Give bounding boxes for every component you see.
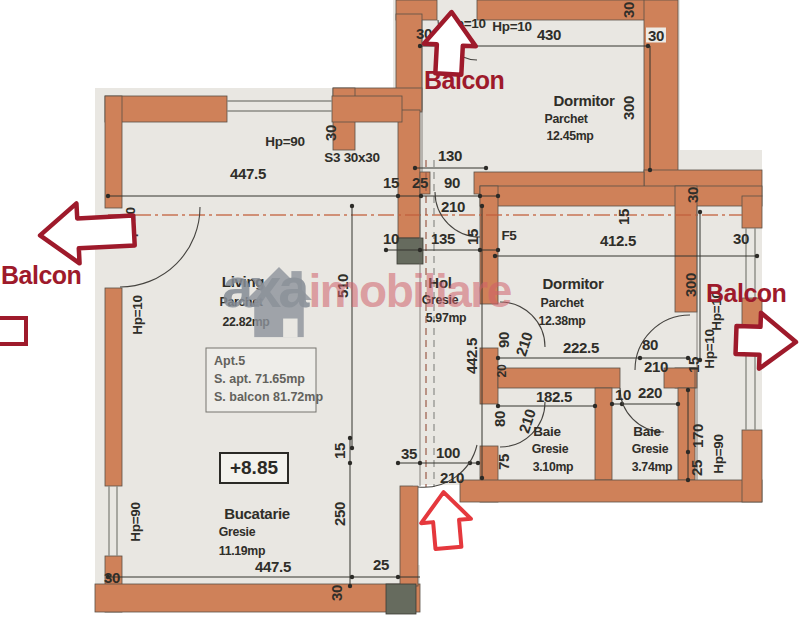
- level-value: +8.85: [230, 457, 278, 479]
- dim-label: 250: [332, 502, 347, 526]
- dim-label: 30: [646, 28, 666, 43]
- dim-label: 300: [621, 96, 636, 120]
- dim-label: 30: [416, 26, 432, 41]
- dim-label: 135: [431, 231, 455, 246]
- level-badge: +8.85: [219, 452, 289, 484]
- dim-label: 15: [686, 357, 701, 373]
- dim-label: 15: [383, 175, 399, 190]
- dim-label: 35: [401, 446, 417, 461]
- dim-label: 442.5: [464, 338, 479, 374]
- room-floor: Gresie: [632, 443, 668, 455]
- dim-label: 220: [638, 385, 662, 400]
- dim-label: 170: [690, 424, 705, 448]
- dim-label: 20: [496, 364, 508, 377]
- room-floor: Parchet: [219, 296, 262, 308]
- dim-label: 447.5: [230, 166, 266, 181]
- dim-label: 510: [335, 274, 350, 298]
- dim-label: 30: [685, 187, 700, 203]
- dim-label: 100: [436, 445, 460, 460]
- dim-label: 10: [615, 387, 631, 402]
- dim-label: Hp=90: [129, 502, 143, 541]
- dim-label: 430: [537, 27, 561, 42]
- dim-label: 90: [444, 175, 460, 190]
- dim-label: 447.5: [255, 559, 291, 574]
- room-area: 5.97mp: [426, 312, 467, 324]
- room-name: Bucatarie: [224, 506, 290, 521]
- room-floor: Parchet: [544, 113, 587, 125]
- dim-label: Hp=90: [712, 434, 726, 473]
- dim-label: F5: [501, 229, 516, 243]
- room-area: 11.19mp: [219, 545, 265, 557]
- dim-label: 80: [492, 411, 507, 427]
- room-area: 22.82mp: [222, 316, 269, 328]
- dim-label: Hp=10: [131, 295, 145, 334]
- dim-label: 210: [513, 330, 535, 358]
- room-name: Baie: [633, 425, 660, 439]
- room-name: Living: [222, 274, 264, 289]
- room-floor: Gresie: [422, 294, 458, 306]
- dim-label: 80: [642, 337, 658, 352]
- balcony-label-top: Balcon: [424, 68, 504, 93]
- dim-label: 300: [683, 273, 698, 297]
- dim-label: 30: [104, 570, 120, 585]
- dim-label: 182.5: [536, 389, 572, 404]
- dim-label: 90: [496, 332, 511, 348]
- labels: Hp=10 Hp=10 430 30 30 30 300 130 15 25 9…: [0, 0, 800, 617]
- dim-label: 210: [644, 359, 668, 374]
- dim-label: Hp=10: [703, 329, 717, 368]
- dim-label: 210: [441, 199, 465, 214]
- dim-label: 15: [616, 209, 631, 225]
- apartment-surface: S. apt. 71.65mp: [214, 373, 305, 386]
- apartment-id: Apt.5: [214, 355, 245, 368]
- dim-label: 30: [323, 125, 338, 141]
- dim-label: Hp=10: [492, 20, 531, 34]
- dim-label: 15: [332, 443, 347, 459]
- room-area: 12.45mp: [546, 130, 593, 142]
- room-area: 3.74mp: [632, 461, 673, 473]
- dim-label: 412.5: [600, 233, 636, 248]
- floor-plan: Hp=10 Hp=10 430 30 30 30 300 130 15 25 9…: [0, 0, 800, 617]
- room-floor: Parchet: [540, 297, 583, 309]
- apartment-balcony-area: S. balcon 81.72mp: [214, 391, 323, 404]
- room-name: Dormitor: [543, 276, 604, 291]
- dim-label: 75: [496, 454, 511, 470]
- dim-label: 25: [373, 557, 389, 572]
- dim-label: Hp=90: [265, 135, 304, 149]
- room-area: 3.10mp: [533, 461, 574, 473]
- dim-label: 30: [733, 231, 749, 246]
- dim-label: 30: [621, 2, 636, 18]
- room-name: Baie: [533, 425, 560, 439]
- dim-label: 210: [440, 470, 464, 485]
- room-area: 12.38mp: [538, 315, 585, 327]
- dim-label: Hp=10: [124, 207, 138, 246]
- dim-label: 25: [689, 460, 704, 476]
- dim-label: 10: [383, 231, 399, 246]
- dim-label: 222.5: [563, 340, 599, 355]
- room-floor: Gresie: [219, 526, 255, 538]
- room-floor: Gresie: [532, 443, 568, 455]
- dim-label: 130: [438, 148, 462, 163]
- dim-label: Hp=10: [446, 17, 485, 31]
- room-name: Dormitor: [554, 93, 615, 108]
- room-name: Hol: [428, 275, 451, 290]
- dim-label: 30: [329, 585, 344, 601]
- balcony-label-left: Balcon: [1, 263, 81, 288]
- dim-label: S3 30x30: [324, 151, 379, 165]
- dim-label: 15: [465, 229, 480, 245]
- dim-label: 25: [412, 175, 428, 190]
- balcony-label-right: Balcon: [706, 281, 786, 306]
